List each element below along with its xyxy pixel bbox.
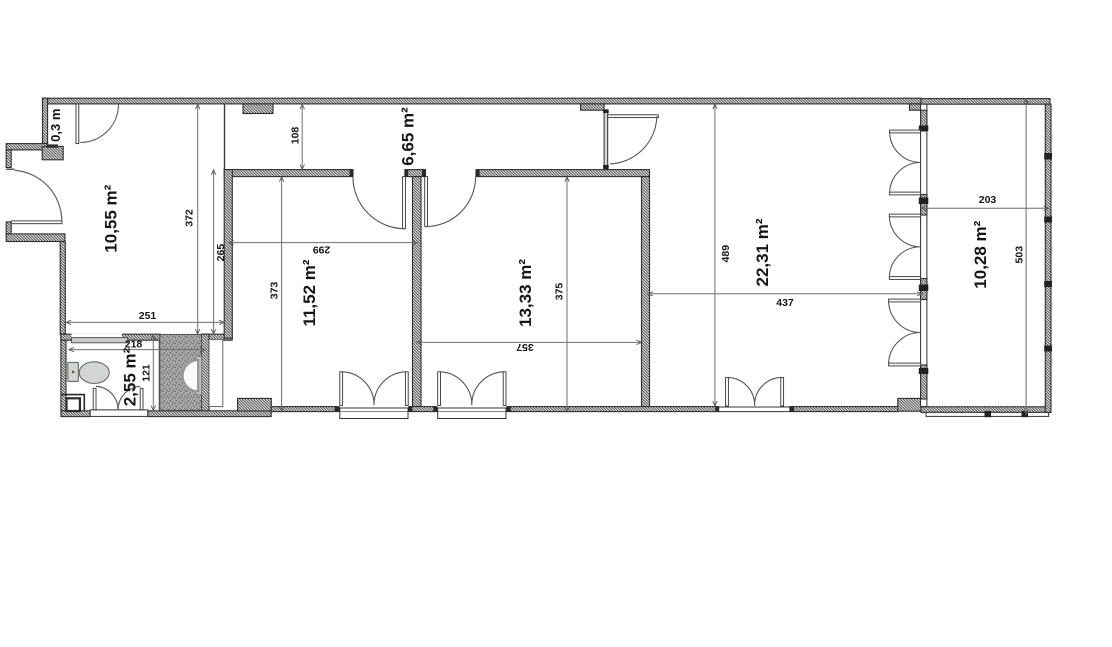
svg-text:372: 372 [184, 209, 196, 227]
svg-text:108: 108 [289, 127, 301, 145]
svg-text:437: 437 [776, 297, 794, 309]
svg-text:2,55 m²: 2,55 m² [121, 347, 140, 406]
svg-text:10,55 m²: 10,55 m² [102, 184, 121, 252]
svg-text:265: 265 [215, 244, 227, 262]
svg-text:375: 375 [554, 283, 566, 301]
svg-text:0,3 m: 0,3 m [48, 109, 63, 142]
svg-text:6,65 m²: 6,65 m² [399, 107, 418, 166]
svg-text:11,52 m²: 11,52 m² [300, 259, 319, 326]
svg-text:203: 203 [979, 194, 997, 206]
svg-text:489: 489 [720, 245, 732, 263]
svg-text:299: 299 [313, 244, 331, 256]
svg-text:503: 503 [1014, 246, 1026, 264]
svg-text:357: 357 [516, 341, 534, 353]
svg-text:251: 251 [139, 310, 157, 322]
svg-text:121: 121 [141, 364, 153, 382]
svg-text:22,31 m²: 22,31 m² [753, 218, 772, 286]
svg-text:13,33 m²: 13,33 m² [516, 259, 535, 327]
svg-text:373: 373 [269, 282, 281, 300]
svg-text:10,28 m²: 10,28 m² [971, 220, 990, 288]
